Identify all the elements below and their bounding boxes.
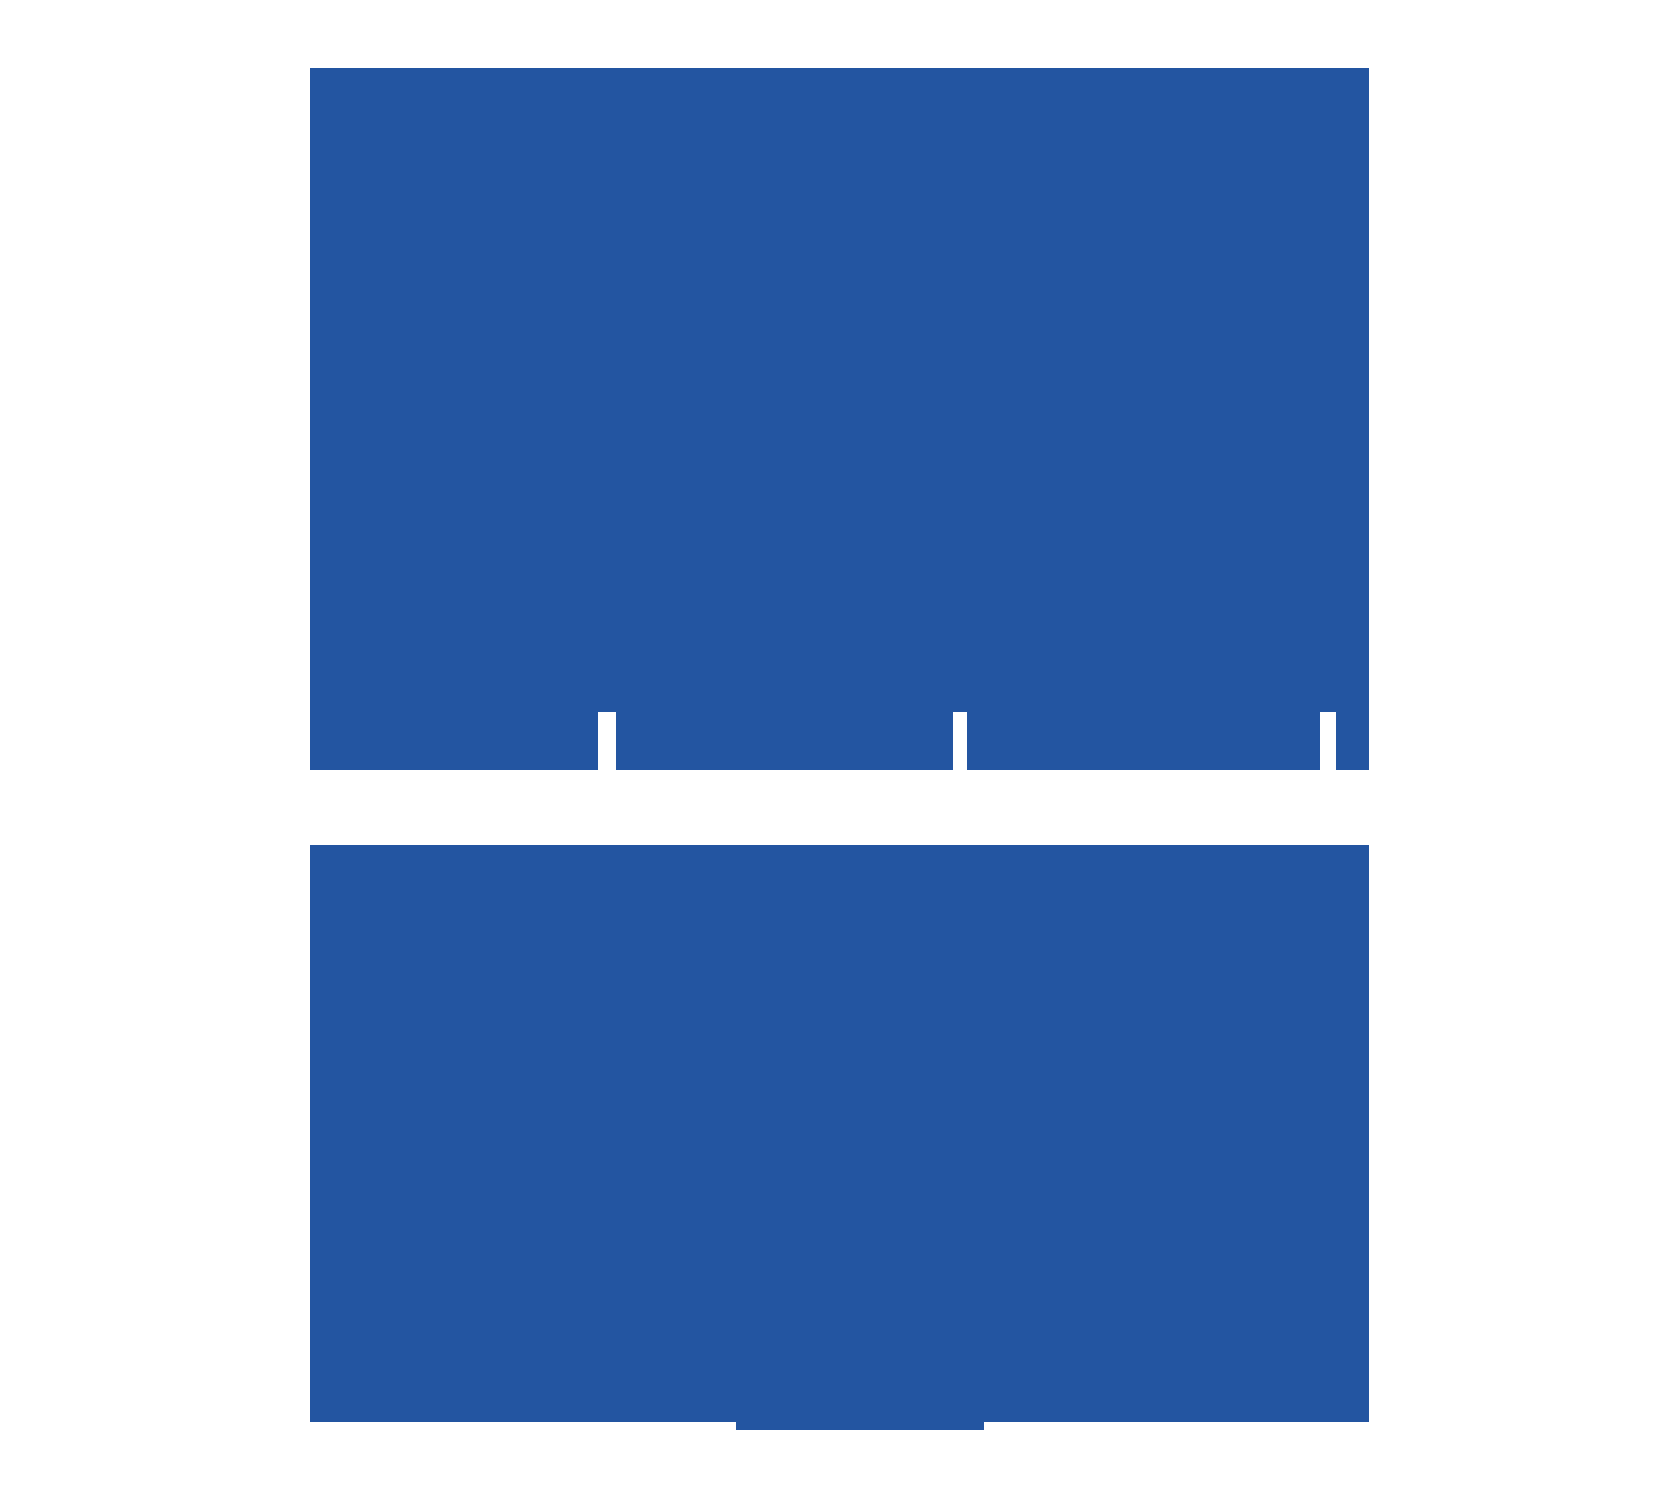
top-block-bottom-segment-4	[1336, 712, 1369, 770]
bottom-block-body	[310, 845, 1369, 1422]
top-block-bottom-segment-1	[310, 712, 598, 770]
blue-blocks-canvas	[0, 0, 1680, 1500]
bottom-block-tab	[736, 1422, 984, 1430]
top-block-body	[310, 68, 1369, 712]
top-block-bottom-segment-2	[616, 712, 953, 770]
top-block-bottom-segment-3	[967, 712, 1320, 770]
